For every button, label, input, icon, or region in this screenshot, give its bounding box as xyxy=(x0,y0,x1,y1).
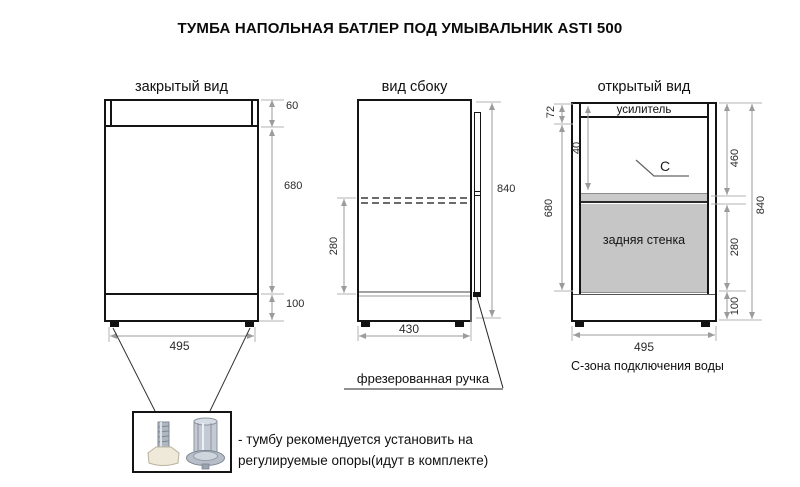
dim-label-side-height: 840 xyxy=(497,183,515,195)
side-view-title: вид сбоку xyxy=(357,79,472,95)
dim-label-closed-top: 60 xyxy=(286,100,298,112)
dim-label-closed-plinth: 100 xyxy=(286,298,304,310)
dim-label-side-drawer: 280 xyxy=(328,229,340,263)
install-note-line1: - тумбу рекомендуется установить на xyxy=(238,432,473,447)
dim-label-open-top: 72 xyxy=(545,95,557,129)
handle-label: фрезерованная ручка xyxy=(343,371,503,386)
dim-label-open-inner: 40 xyxy=(571,131,583,165)
dim-label-open-back: 280 xyxy=(729,230,741,264)
side-cabinet-outline xyxy=(357,99,472,322)
foot-detail-box xyxy=(132,411,232,473)
reinforcement-label: усилитель xyxy=(581,104,707,116)
closed-top-drawer-line xyxy=(106,125,257,127)
water-zone-caption: С-зона подключения воды xyxy=(571,359,724,373)
closed-view-title: закрытый вид xyxy=(104,79,259,95)
dim-label-closed-body: 680 xyxy=(284,180,302,192)
open-shelf-edge-line xyxy=(581,201,707,203)
side-door-panel xyxy=(474,112,481,296)
open-shelf-strip xyxy=(581,193,707,201)
install-note-line2: регулируемые опоры(идут в комплекте) xyxy=(238,453,488,468)
technical-drawing-page: ТУМБА НАПОЛЬНАЯ БАТЛЕР ПОД УМЫВАЛЬНИК AS… xyxy=(0,0,800,487)
open-side-wall-right xyxy=(707,104,709,294)
closed-plinth-line xyxy=(106,293,257,295)
dim-label-open-upper: 460 xyxy=(729,141,741,175)
closed-top-drawer-side-right xyxy=(251,101,253,125)
open-foot-right xyxy=(701,322,710,327)
open-view-title: открытый вид xyxy=(571,79,717,95)
closed-top-drawer-side-left xyxy=(110,101,112,125)
dim-label-open-height: 840 xyxy=(755,188,767,222)
back-panel-label: задняя стенка xyxy=(581,233,707,247)
page-title: ТУМБА НАПОЛЬНАЯ БАТЛЕР ПОД УМЫВАЛЬНИК AS… xyxy=(0,20,800,37)
water-zone-marker-label: C xyxy=(660,158,670,174)
side-door-hinge-mark-2 xyxy=(475,195,480,196)
side-foot-right xyxy=(455,322,464,327)
open-foot-left xyxy=(575,322,584,327)
adjustable-feet-illustration xyxy=(134,413,230,471)
dim-label-open-plinth: 100 xyxy=(729,289,741,323)
dim-label-side-width: 430 xyxy=(389,323,429,336)
dim-label-open-body: 680 xyxy=(543,191,555,225)
closed-cabinet-outline xyxy=(104,99,259,322)
open-plinth-top-line xyxy=(573,294,715,295)
dim-label-closed-width: 495 xyxy=(104,340,255,353)
side-foot-left xyxy=(361,322,370,327)
closed-foot-right xyxy=(245,322,254,327)
dim-label-open-width: 495 xyxy=(571,341,717,354)
side-door-hinge-mark-1 xyxy=(475,191,480,192)
side-door-bottom-cap xyxy=(473,292,481,297)
open-reinforcement-strip: усилитель xyxy=(581,104,707,118)
closed-foot-left xyxy=(110,322,119,327)
open-back-panel: задняя стенка xyxy=(581,204,707,293)
